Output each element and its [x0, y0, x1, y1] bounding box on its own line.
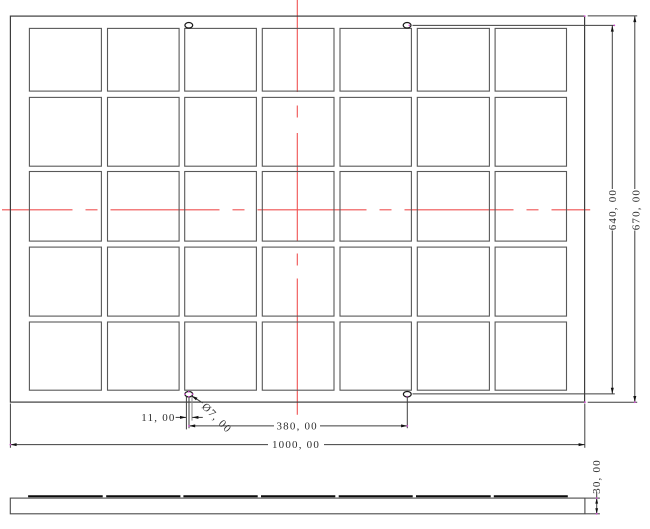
svg-text:11, 00: 11, 00 — [141, 412, 175, 424]
svg-text:380, 00: 380, 00 — [276, 421, 317, 433]
svg-text:640, 00: 640, 00 — [607, 189, 619, 230]
svg-text:670, 00: 670, 00 — [630, 189, 642, 230]
svg-text:1000, 00: 1000, 00 — [272, 439, 320, 451]
svg-text:30, 00: 30, 00 — [591, 459, 603, 494]
